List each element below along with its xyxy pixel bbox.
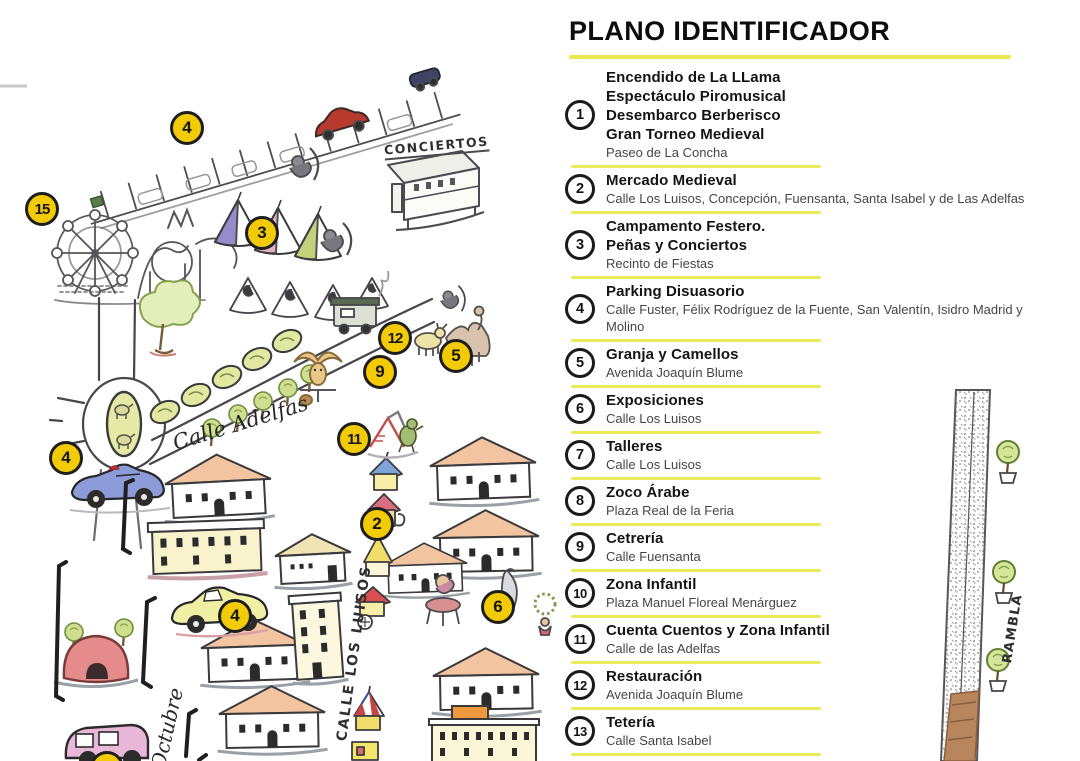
legend-separator	[571, 569, 821, 572]
legend-item-title-line: Cetrería	[606, 529, 701, 548]
legend-item-title-line: Espectáculo Piromusical	[606, 87, 786, 106]
legend-separator	[571, 477, 821, 480]
legend-item-9: 9CetreríaCalle Fuensanta	[565, 527, 1035, 567]
legend-item-title-line: Mercado Medieval	[606, 171, 1024, 190]
legend-item-title-line: Campamento Festero.	[606, 217, 765, 236]
legend-item-title-line: Tetería	[606, 713, 712, 732]
legend-item-2: 2Mercado MedievalCalle Los Luisos, Conce…	[565, 169, 1035, 209]
legend-item-location: Calle Los Luisos	[606, 456, 701, 473]
legend-item-title-line: Parking Disuasorio	[606, 282, 1035, 301]
legend-list: 1Encendido de La LLamaEspectáculo Piromu…	[565, 66, 1035, 761]
legend-item-title-line: Restauración	[606, 667, 743, 686]
map-marker-2: 2	[360, 507, 394, 541]
legend-separator	[571, 707, 821, 710]
legend-item-12: 12RestauraciónAvenida Joaquín Blume	[565, 665, 1035, 705]
legend-item-title-line: Granja y Camellos	[606, 345, 743, 364]
legend-item-10: 10Zona InfantilPlaza Manuel Floreal Mená…	[565, 573, 1035, 613]
legend-item-title-line: Desembarco Berberisco	[606, 106, 786, 125]
legend-item-text: Parking DisuasorioCalle Fuster, Félix Ro…	[606, 282, 1035, 335]
legend-item-title-line: Exposiciones	[606, 391, 704, 410]
legend-item-13: 13TeteríaCalle Santa Isabel	[565, 711, 1035, 751]
legend-item-location: Recinto de Fiestas	[606, 255, 765, 272]
legend-item-text: Zona InfantilPlaza Manuel Floreal Menárg…	[606, 575, 797, 611]
map-marker-15: 15	[25, 192, 59, 226]
map-marker-9: 9	[363, 355, 397, 389]
legend-item-text: ExposicionesCalle Los Luisos	[606, 391, 704, 427]
legend-item-text: CetreríaCalle Fuensanta	[606, 529, 701, 565]
legend-item-text: Mercado MedievalCalle Los Luisos, Concep…	[606, 171, 1024, 207]
plano-identificador-page: CONCIERTOS Calle Adelfas CALLE LOS LUISO…	[0, 0, 1080, 761]
map-marker-4: 4	[170, 111, 204, 145]
legend-item-location: Calle Fuster, Félix Rodríguez de la Fuen…	[606, 301, 1035, 335]
legend-number-badge: 3	[565, 230, 595, 260]
legend-separator	[571, 615, 821, 618]
legend-item-location: Plaza Real de la Feria	[606, 502, 734, 519]
legend-item-text: Zoco ÁrabePlaza Real de la Feria	[606, 483, 734, 519]
legend-item-text: Cuenta Cuentos y Zona InfantilCalle de l…	[606, 621, 830, 657]
legend-item-title-line: Peñas y Conciertos	[606, 236, 765, 255]
legend-number-badge: 13	[565, 716, 595, 746]
page-title: PLANO IDENTIFICADOR	[569, 16, 1035, 46]
legend-separator	[571, 753, 821, 756]
legend-number-badge: 11	[565, 624, 595, 654]
legend-item-title-line: Zona Infantil	[606, 575, 797, 594]
legend-item-4: 4Parking DisuasorioCalle Fuster, Félix R…	[565, 280, 1035, 337]
legend-item-7: 7TalleresCalle Los Luisos	[565, 435, 1035, 475]
legend-item-11: 11Cuenta Cuentos y Zona InfantilCalle de…	[565, 619, 1035, 659]
legend-item-title-line: Gran Torneo Medieval	[606, 125, 786, 144]
legend-item-text: TeteríaCalle Santa Isabel	[606, 713, 712, 749]
legend-separator	[571, 661, 821, 664]
legend-item-text: Encendido de La LLamaEspectáculo Piromus…	[606, 68, 786, 161]
legend-panel: PLANO IDENTIFICADOR 1Encendido de La LLa…	[565, 0, 1035, 761]
legend-number-badge: 4	[565, 294, 595, 324]
title-underline	[569, 55, 1011, 59]
map-marker-12: 12	[378, 321, 412, 355]
legend-item-location: Calle Santa Isabel	[606, 732, 712, 749]
legend-item-location: Avenida Joaquín Blume	[606, 364, 743, 381]
map-marker-11: 11	[337, 422, 371, 456]
legend-number-badge: 6	[565, 394, 595, 424]
legend-number-badge: 5	[565, 348, 595, 378]
map-marker-5: 5	[439, 339, 473, 373]
legend-item-6: 6ExposicionesCalle Los Luisos	[565, 389, 1035, 429]
legend-separator	[571, 339, 821, 342]
legend-item-location: Calle Los Luisos, Concepción, Fuensanta,…	[606, 190, 1024, 207]
legend-item-location: Avenida Joaquín Blume	[606, 686, 743, 703]
legend-item-location: Calle Fuensanta	[606, 548, 701, 565]
map-marker-4: 4	[49, 441, 83, 475]
legend-separator	[571, 211, 821, 214]
legend-item-location: Plaza Manuel Floreal Menárguez	[606, 594, 797, 611]
legend-separator	[571, 431, 821, 434]
legend-number-badge: 7	[565, 440, 595, 470]
legend-item-text: Granja y CamellosAvenida Joaquín Blume	[606, 345, 743, 381]
legend-item-title-line: Cuenta Cuentos y Zona Infantil	[606, 621, 830, 640]
legend-separator	[571, 276, 821, 279]
map-marker-3: 3	[245, 216, 279, 250]
legend-number-badge: 12	[565, 670, 595, 700]
legend-item-3: 3Campamento Festero.Peñas y ConciertosRe…	[565, 215, 1035, 274]
map-marker-4: 4	[218, 599, 252, 633]
legend-item-8: 8Zoco ÁrabePlaza Real de la Feria	[565, 481, 1035, 521]
legend-item-title-line: Talleres	[606, 437, 701, 456]
legend-item-1: 1Encendido de La LLamaEspectáculo Piromu…	[565, 66, 1035, 163]
legend-item-text: Campamento Festero.Peñas y ConciertosRec…	[606, 217, 765, 272]
legend-number-badge: 8	[565, 486, 595, 516]
legend-item-title-line: Encendido de La LLama	[606, 68, 786, 87]
legend-number-badge: 1	[565, 100, 595, 130]
map-marker-6: 6	[481, 590, 515, 624]
legend-item-5: 5Granja y CamellosAvenida Joaquín Blume	[565, 343, 1035, 383]
legend-item-14: 14Espectáculo de Clausura,Simulacro de I…	[565, 757, 1035, 761]
legend-separator	[571, 385, 821, 388]
legend-item-location: Calle Los Luisos	[606, 410, 704, 427]
legend-number-badge: 9	[565, 532, 595, 562]
legend-separator	[571, 165, 821, 168]
legend-item-text: TalleresCalle Los Luisos	[606, 437, 701, 473]
legend-item-location: Calle de las Adelfas	[606, 640, 830, 657]
legend-number-badge: 2	[565, 174, 595, 204]
legend-item-location: Paseo de La Concha	[606, 144, 786, 161]
legend-item-text: RestauraciónAvenida Joaquín Blume	[606, 667, 743, 703]
legend-item-title-line: Zoco Árabe	[606, 483, 734, 502]
legend-separator	[571, 523, 821, 526]
legend-number-badge: 10	[565, 578, 595, 608]
